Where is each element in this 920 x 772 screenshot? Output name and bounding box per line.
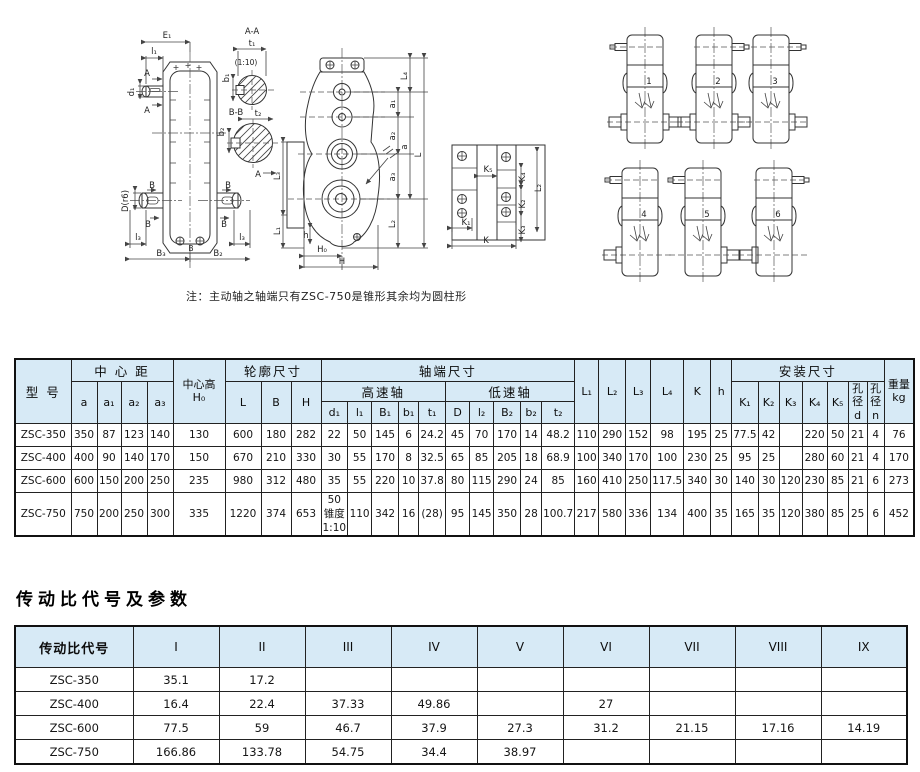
model-cell: ZSC-600 [15,469,71,492]
value-cell: 70 [470,423,494,446]
value-cell: 165 [732,492,758,536]
value-cell: 350 [494,492,521,536]
th-a2: a₂ [121,381,147,423]
dim-a3-label: a₃ [388,173,398,182]
dim-l3-right: l₃ [239,233,245,243]
value-cell: 17.2 [219,668,305,692]
value-cell: 30 [711,469,732,492]
model-cell: ZSC-600 [15,716,133,740]
arrangement-1: 1 [607,27,683,151]
section-arrow-A-view: A [255,170,261,180]
th-b2: b₂ [521,401,542,423]
th-l1: l₁ [348,401,372,423]
th-a1: a₁ [97,381,121,423]
th-ratio-VI: VI [563,626,649,668]
dim-L1-label: L₁ [273,227,283,235]
th-weight-unit: kg [886,391,913,405]
value-cell: 50 [827,423,848,446]
value-cell: 342 [372,492,399,536]
th-ratio-code: 传动比代号 [15,626,133,668]
section-arrow-A-top: A [144,69,150,79]
th-mounting: 安装尺寸 [732,359,884,381]
value-cell [779,423,802,446]
table-row: ZSC-600600150200250235980312480355522010… [15,469,914,492]
value-cell: 290 [599,423,626,446]
value-cell: 21 [848,423,867,446]
value-cell: 21.15 [649,716,735,740]
value-cell: 30 [321,446,348,469]
value-cell: 400 [71,446,97,469]
dim-K4-label: K₄ [518,172,528,182]
value-cell: 312 [261,469,291,492]
arrangement-number: 1 [646,77,651,87]
taper-label: (1:10) [235,58,258,67]
value-cell: 55 [348,469,372,492]
value-cell [563,740,649,765]
value-cell: 22 [321,423,348,446]
value-cell: 95 [732,446,758,469]
value-cell: 230 [802,469,827,492]
value-cell: 8 [399,446,419,469]
value-cell [649,692,735,716]
value-cell: 100 [575,446,599,469]
dimension-table: 型 号 中 心 距 中心高 H₀ 轮廓尺寸 轴端尺寸 L₁ L₂ L₃ L₄ K… [14,358,915,537]
value-cell: 350 [71,423,97,446]
th-weight: 重量 kg [884,359,914,423]
value-cell: 54.75 [305,740,391,765]
table-row: ZSC-40016.422.437.3349.8627 [15,692,907,716]
value-cell: 25 [758,446,779,469]
value-cell: 6 [867,469,884,492]
value-cell: 980 [225,469,261,492]
value-cell [821,692,907,716]
value-cell: 205 [494,446,521,469]
dim-B-center: B [188,244,193,253]
value-cell: 335 [173,492,225,536]
model-cell: ZSC-350 [15,423,71,446]
value-cell [649,668,735,692]
value-cell [735,692,821,716]
th-low-speed-shaft: 低速轴 [446,381,575,401]
value-cell: 140 [121,446,147,469]
th-bore-n: 孔径 n [867,381,884,423]
value-cell: 100.7 [542,492,575,536]
th-ratio-I: I [133,626,219,668]
dim-K5-label: K₅ [484,165,493,175]
dim-l1-label: l₁ [151,47,157,57]
value-cell [477,668,563,692]
th-h: h [711,359,732,423]
value-cell: 110 [575,423,599,446]
value-cell: 115 [470,469,494,492]
value-cell: 145 [372,423,399,446]
section-arrow-B-top-left: B [149,181,155,191]
model-cell: ZSC-750 [15,740,133,765]
value-cell: 140 [147,423,173,446]
value-cell: 145 [470,492,494,536]
th-L1: L₁ [575,359,599,423]
dim-D-label: D(r6) [121,190,131,212]
dim-b2-label: b₂ [217,128,227,137]
value-cell: 98 [651,423,684,446]
value-cell: 18 [521,446,542,469]
th-ratio-V: V [477,626,563,668]
value-cell: 42 [758,423,779,446]
dim-t1-label: t₁ [249,39,256,49]
value-cell: 653 [291,492,321,536]
value-cell: 130 [173,423,225,446]
th-l2: l₂ [470,401,494,423]
arrangement-2: 2 [676,27,752,151]
model-cell: ZSC-400 [15,692,133,716]
value-cell: 152 [626,423,651,446]
value-cell: 580 [599,492,626,536]
value-cell [735,740,821,765]
value-cell: 95 [446,492,470,536]
value-cell: 140 [732,469,758,492]
value-cell: 380 [802,492,827,536]
value-cell: 24 [521,469,542,492]
value-cell: 85 [542,469,575,492]
th-a: a [71,381,97,423]
value-cell: 600 [71,469,97,492]
th-H0: H₀ [175,391,224,405]
value-cell [821,740,907,765]
value-cell: 750 [71,492,97,536]
value-cell: 133.78 [219,740,305,765]
value-cell: 100 [651,446,684,469]
value-cell: 25 [711,446,732,469]
mounting-plate-drawing: K₅ K₄ L₂ K₂ K₁ K₃ K [452,145,545,249]
th-weight-cn: 重量 [886,378,913,392]
value-cell: 150 [97,469,121,492]
value-cell: 4 [867,423,884,446]
th-H: H [291,381,321,423]
th-bore-d-cn: 孔径 [850,382,866,410]
value-cell: 35 [321,469,348,492]
section-arrow-B-top-right: B [225,181,231,191]
dim-d1-label: d₁ [127,88,137,97]
value-cell: 25 [848,492,867,536]
value-cell [649,740,735,765]
value-cell: 21 [848,446,867,469]
value-cell [477,692,563,716]
value-cell: 195 [684,423,711,446]
th-B2: B₂ [494,401,521,423]
arrangement-number: 3 [772,77,777,87]
th-center-distance: 中 心 距 [71,359,173,381]
value-cell [779,446,802,469]
section-BB-title: B-B [229,108,244,118]
value-cell: 452 [884,492,914,536]
dim-B3-label: B₃ [156,249,165,259]
th-bore-d: 孔径 d [848,381,867,423]
value-cell: 480 [291,469,321,492]
value-cell: 670 [225,446,261,469]
dim-a-label: a [400,144,410,149]
value-cell: 14.19 [821,716,907,740]
value-cell: 120 [779,492,802,536]
value-cell: 28 [521,492,542,536]
value-cell: 87 [97,423,121,446]
value-cell: 16.4 [133,692,219,716]
arrangement-number: 5 [704,210,709,220]
value-cell: 340 [684,469,711,492]
value-cell: 170 [147,446,173,469]
value-cell: (28) [419,492,446,536]
th-ratio-VIII: VIII [735,626,821,668]
dim-K3-label: K₃ [518,226,528,235]
th-K2: K₂ [758,381,779,423]
dim-H-label: H [339,257,345,267]
value-cell: 10 [399,469,419,492]
value-cell: 17.16 [735,716,821,740]
value-cell: 280 [802,446,827,469]
value-cell: 220 [372,469,399,492]
value-cell: 300 [147,492,173,536]
arrangement-4: 4 [602,160,674,284]
th-bore-n-sym: n [869,409,883,423]
value-cell [563,668,649,692]
value-cell: 290 [494,469,521,492]
value-cell: 230 [684,446,711,469]
dim-K2-label: K₂ [518,200,528,209]
dim-L4-label: L₄ [400,71,410,80]
th-B: B [261,381,291,423]
table-row: ZSC-35035.117.2 [15,668,907,692]
drawing-note: 注：主动轴之轴端只有ZSC-750是锥形其余均为圆柱形 [186,288,467,304]
value-cell: 282 [291,423,321,446]
value-cell: 6 [867,492,884,536]
section-AA-title: A-A [245,27,260,37]
dim-L-label: L [414,152,424,157]
th-K4: K₄ [802,381,827,423]
th-ratio-II: II [219,626,305,668]
value-cell: 250 [626,469,651,492]
th-ratio-III: III [305,626,391,668]
value-cell: 34.4 [391,740,477,765]
value-cell: 210 [261,446,291,469]
th-L4: L₄ [651,359,684,423]
value-cell: 37.9 [391,716,477,740]
dim-L3-label: L₃ [273,172,283,180]
section-title: 传动比代号及参数 [16,585,192,610]
value-cell: 45 [446,423,470,446]
th-L3: L₃ [626,359,651,423]
dim-t2-label: t₂ [255,109,262,119]
value-cell: 336 [626,492,651,536]
value-cell: 273 [884,469,914,492]
value-cell: 50 锥度 1:10 [321,492,348,536]
value-cell: 31.2 [563,716,649,740]
arrangement-number: 6 [775,210,780,220]
table-row: ZSC-350350871231401306001802822250145624… [15,423,914,446]
value-cell: 200 [97,492,121,536]
value-cell: 160 [575,469,599,492]
value-cell: 60 [827,446,848,469]
arrangement-6: 6 [738,160,810,284]
value-cell: 180 [261,423,291,446]
section-arrow-B-bottom-right: B [221,220,227,230]
th-L: L [225,381,261,423]
th-center-height-cn: 中心高 [175,378,224,392]
value-cell: 120 [779,469,802,492]
value-cell: 16 [399,492,419,536]
th-B1: B₁ [372,401,399,423]
value-cell: 170 [884,446,914,469]
section-arrow-A-bottom: A [144,106,150,116]
th-K3: K₃ [779,381,802,423]
th-t1: t₁ [419,401,446,423]
table-row: ZSC-60077.55946.737.927.331.221.1517.161… [15,716,907,740]
value-cell: 65 [446,446,470,469]
value-cell: 37.33 [305,692,391,716]
value-cell: 14 [521,423,542,446]
dim-L2-plate-label: L₂ [534,184,544,192]
value-cell: 340 [599,446,626,469]
value-cell: 35 [758,492,779,536]
th-K1: K₁ [732,381,758,423]
dim-B2-label: B₂ [213,249,222,259]
value-cell: 50 [348,423,372,446]
value-cell: 80 [446,469,470,492]
value-cell: 27.3 [477,716,563,740]
value-cell [821,668,907,692]
value-cell [305,668,391,692]
value-cell: 134 [651,492,684,536]
th-shaft-end: 轴端尺寸 [321,359,575,381]
value-cell: 24.2 [419,423,446,446]
dim-a1-label: a₁ [388,100,398,109]
value-cell: 250 [147,469,173,492]
th-high-speed-shaft: 高速轴 [321,381,446,401]
value-cell: 6 [399,423,419,446]
value-cell: 250 [121,492,147,536]
dim-l3-left: l₃ [135,233,141,243]
th-ratio-VII: VII [649,626,735,668]
value-cell: 150 [173,446,225,469]
th-bore-d-sym: d [850,409,866,423]
value-cell: 76 [884,423,914,446]
value-cell: 85 [827,492,848,536]
value-cell: 30 [758,469,779,492]
dim-H0-label: H₀ [317,245,327,255]
dim-K-label: K [483,236,489,246]
value-cell: 4 [867,446,884,469]
value-cell: 170 [626,446,651,469]
th-D: D [446,401,470,423]
table-row: ZSC-400400901401701506702103303055170832… [15,446,914,469]
plate-holes [458,152,511,218]
th-d1: d₁ [321,401,348,423]
value-cell [391,668,477,692]
value-cell: 217 [575,492,599,536]
value-cell: 48.2 [542,423,575,446]
model-cell: ZSC-750 [15,492,71,536]
value-cell: 117.5 [651,469,684,492]
value-cell [735,668,821,692]
arrangement-3: 3 [737,27,809,151]
th-L2: L₂ [599,359,626,423]
value-cell: 21 [848,469,867,492]
value-cell: 37.8 [419,469,446,492]
value-cell: 220 [802,423,827,446]
arrangement-5: 5 [668,160,741,284]
value-cell: 330 [291,446,321,469]
table-row: ZSC-750750200250300335122037465350 锥度 1:… [15,492,914,536]
value-cell: 166.86 [133,740,219,765]
section-views-drawing: A-A t₁ (1:10) b₁ B-B t₂ b₂ A [217,27,279,180]
value-cell: 200 [121,469,147,492]
value-cell: 90 [97,446,121,469]
value-cell: 68.9 [542,446,575,469]
value-cell: 59 [219,716,305,740]
value-cell: 600 [225,423,261,446]
value-cell: 170 [372,446,399,469]
th-ratio-IV: IV [391,626,477,668]
arrangement-number: 2 [715,77,720,87]
model-cell: ZSC-350 [15,668,133,692]
value-cell: 77.5 [133,716,219,740]
th-model: 型 号 [15,359,71,423]
th-outline: 轮廓尺寸 [225,359,321,381]
value-cell: 170 [494,423,521,446]
value-cell: 22.4 [219,692,305,716]
value-cell: 32.5 [419,446,446,469]
th-a3: a₃ [147,381,173,423]
value-cell: 410 [599,469,626,492]
th-K5: K₅ [827,381,848,423]
side-view-drawing: a₁ a₂ a₃ L₂ L₄ a L L₃ L₁ h H₀ H [273,48,428,270]
value-cell: 77.5 [732,423,758,446]
value-cell: 110 [348,492,372,536]
arrangement-number: 4 [641,210,646,220]
dim-L2-side-label: L₂ [388,220,398,228]
model-cell: ZSC-400 [15,446,71,469]
value-cell: 374 [261,492,291,536]
value-cell: 35 [711,492,732,536]
value-cell: 85 [470,446,494,469]
value-cell: 46.7 [305,716,391,740]
value-cell: 25 [711,423,732,446]
th-ratio-IX: IX [821,626,907,668]
th-K: K [684,359,711,423]
value-cell: 85 [827,469,848,492]
value-cell: 235 [173,469,225,492]
value-cell: 35.1 [133,668,219,692]
table-row: ZSC-750166.86133.7854.7534.438.97 [15,740,907,765]
value-cell: 400 [684,492,711,536]
value-cell: 123 [121,423,147,446]
dim-K1-label: K₁ [462,218,471,228]
ratio-table: 传动比代号 I II III IV V VI VII VIII IX ZSC-3… [14,625,908,765]
dim-b1-label: b₁ [222,74,232,83]
value-cell: 1220 [225,492,261,536]
th-bore-n-cn: 孔径 [869,382,883,410]
th-b1: b₁ [399,401,419,423]
dim-E1-label: E₁ [163,31,172,41]
value-cell: 55 [348,446,372,469]
front-view-drawing: d₁ l₁ E₁ A A B B B B D(r6) [121,31,250,268]
th-t2: t₂ [542,401,575,423]
value-cell: 38.97 [477,740,563,765]
th-center-height: 中心高 H₀ [173,359,225,423]
value-cell: 27 [563,692,649,716]
dim-a2-label: a₂ [388,132,398,141]
value-cell: 49.86 [391,692,477,716]
